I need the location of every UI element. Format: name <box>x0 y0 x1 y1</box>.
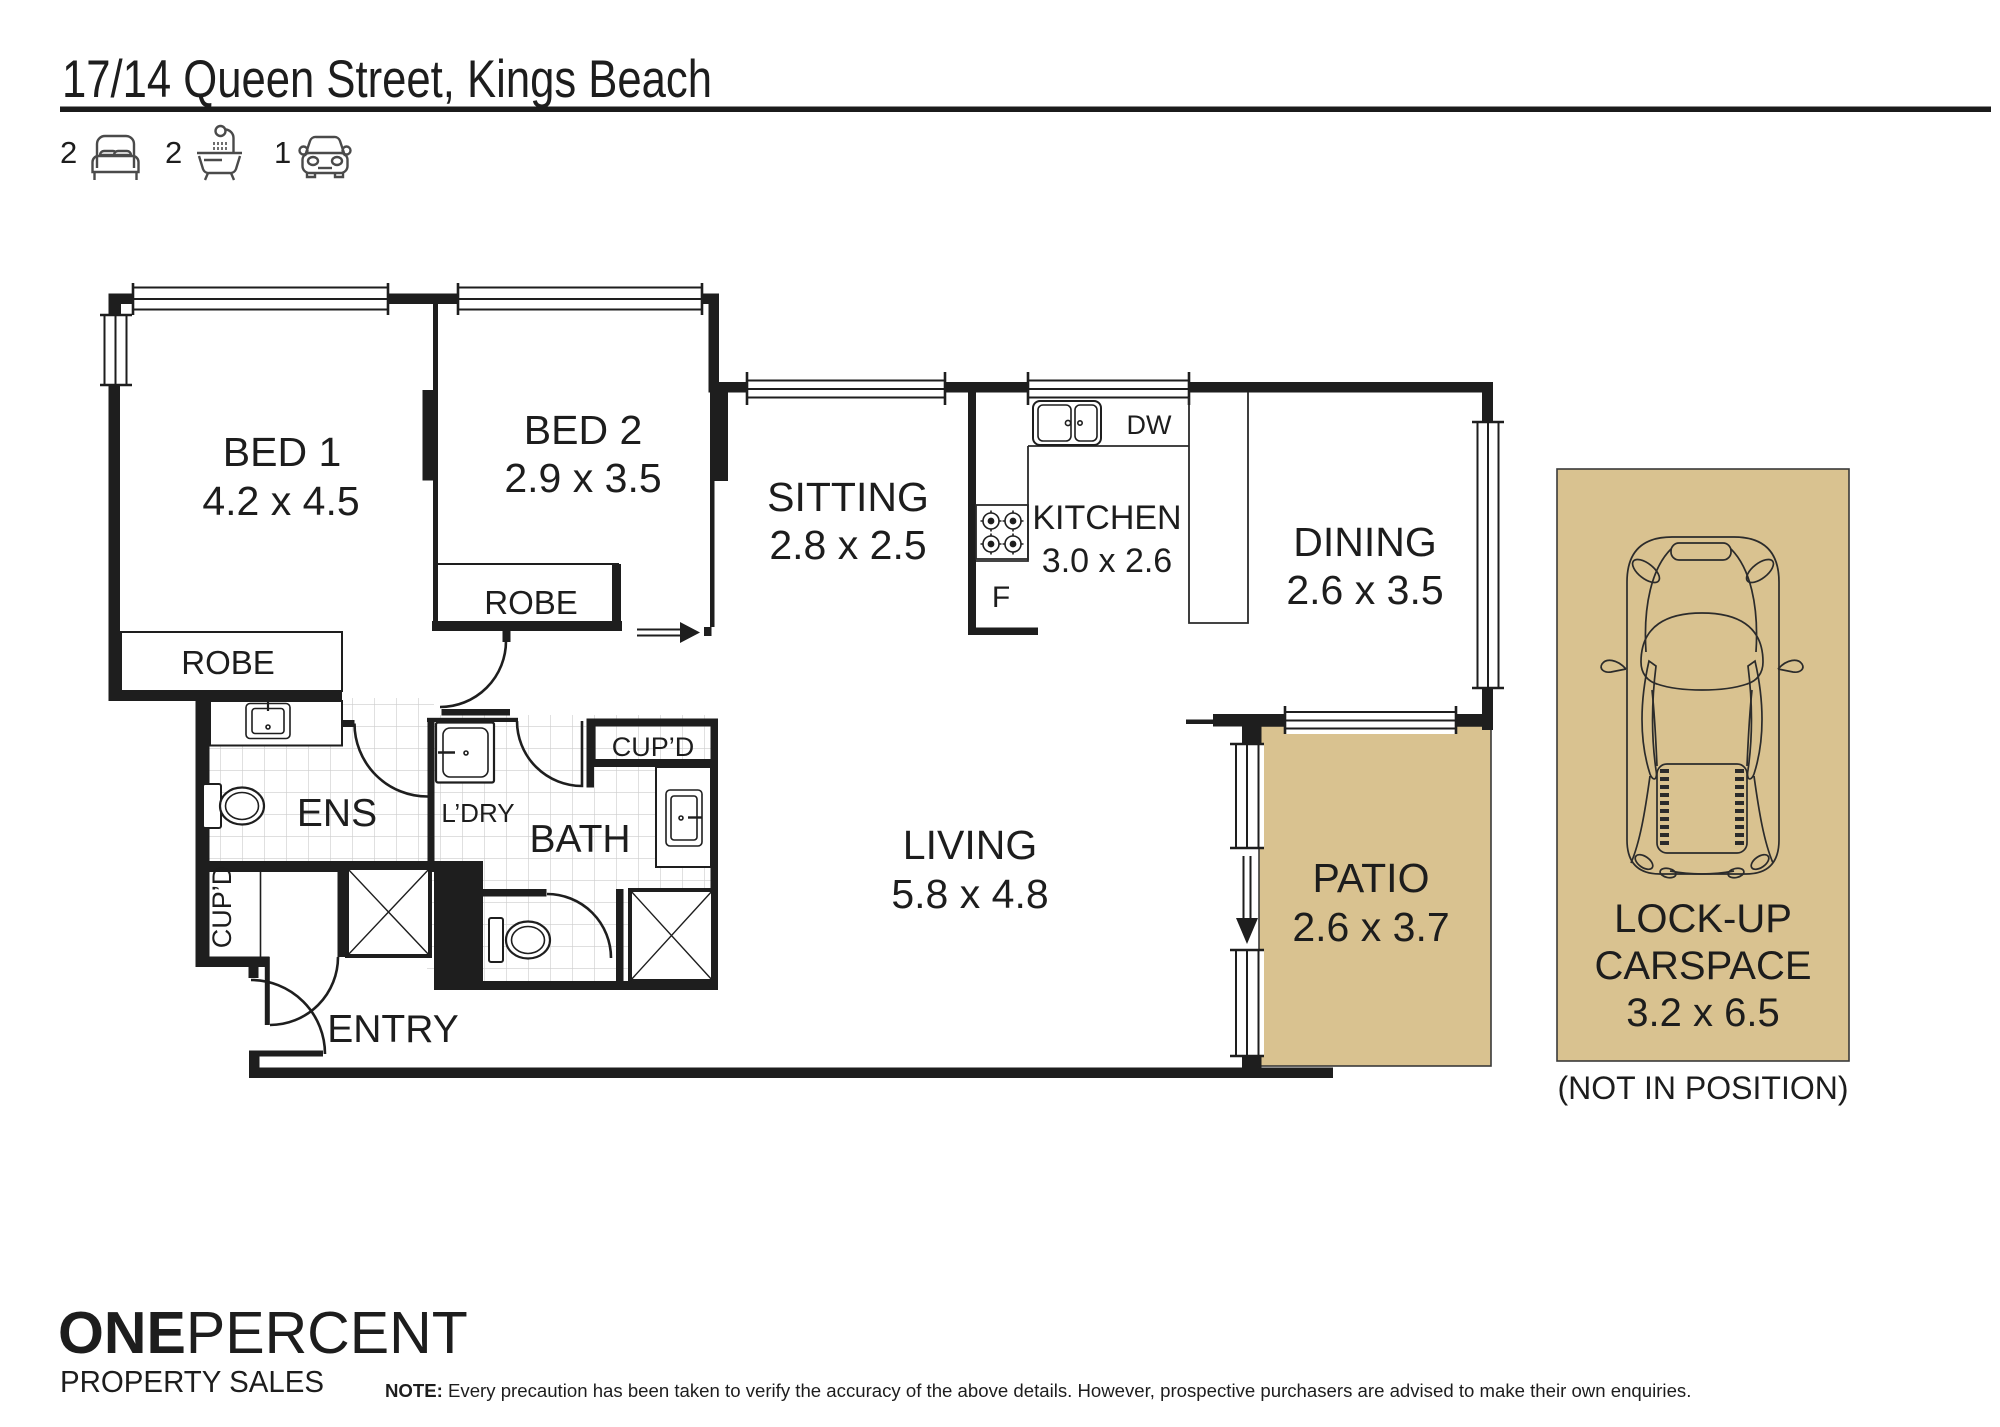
svg-text:BATH: BATH <box>529 818 630 861</box>
svg-text:L’DRY: L’DRY <box>441 798 514 828</box>
svg-text:ROBE: ROBE <box>484 584 578 621</box>
svg-text:2: 2 <box>165 135 182 170</box>
svg-text:KITCHEN: KITCHEN <box>1032 499 1181 537</box>
svg-text:DINING: DINING <box>1293 519 1437 565</box>
svg-text:2: 2 <box>60 135 77 170</box>
svg-text:ENTRY: ENTRY <box>327 1008 458 1051</box>
svg-text:2.9 x 3.5: 2.9 x 3.5 <box>504 455 661 501</box>
svg-text:PATIO: PATIO <box>1313 855 1430 901</box>
svg-text:BED 1: BED 1 <box>223 429 342 475</box>
svg-text:1: 1 <box>274 135 291 170</box>
svg-text:CARSPACE: CARSPACE <box>1594 944 1811 988</box>
svg-text:ROBE: ROBE <box>181 644 275 681</box>
svg-text:PROPERTY SALES: PROPERTY SALES <box>60 1364 324 1399</box>
svg-text:2.6 x 3.5: 2.6 x 3.5 <box>1286 567 1443 613</box>
svg-text:DW: DW <box>1127 410 1172 440</box>
svg-text:BED 2: BED 2 <box>524 407 643 453</box>
svg-text:17/14 Queen Street, Kings Beac: 17/14 Queen Street, Kings Beach <box>62 50 712 109</box>
svg-text:2.8 x 2.5: 2.8 x 2.5 <box>769 522 926 568</box>
svg-text:NOTE: Every precaution has bee: NOTE: Every precaution has been taken to… <box>385 1380 1691 1401</box>
svg-text:4.2 x 4.5: 4.2 x 4.5 <box>202 478 359 524</box>
svg-text:ENS: ENS <box>297 792 377 835</box>
svg-text:2.6 x 3.7: 2.6 x 3.7 <box>1292 904 1449 950</box>
svg-text:SITTING: SITTING <box>767 474 929 520</box>
svg-text:5.8 x 4.8: 5.8 x 4.8 <box>891 871 1048 917</box>
svg-text:3.2 x 6.5: 3.2 x 6.5 <box>1626 991 1779 1035</box>
svg-text:3.0 x 2.6: 3.0 x 2.6 <box>1042 542 1172 580</box>
svg-text:ONEPERCENT: ONEPERCENT <box>58 1300 468 1366</box>
svg-text:CUP’D: CUP’D <box>207 866 237 949</box>
svg-text:(NOT IN POSITION): (NOT IN POSITION) <box>1558 1070 1849 1106</box>
svg-text:LOCK-UP: LOCK-UP <box>1614 897 1792 941</box>
svg-text:CUP’D: CUP’D <box>612 732 695 762</box>
svg-text:LIVING: LIVING <box>903 822 1037 868</box>
svg-text:F: F <box>992 581 1010 614</box>
